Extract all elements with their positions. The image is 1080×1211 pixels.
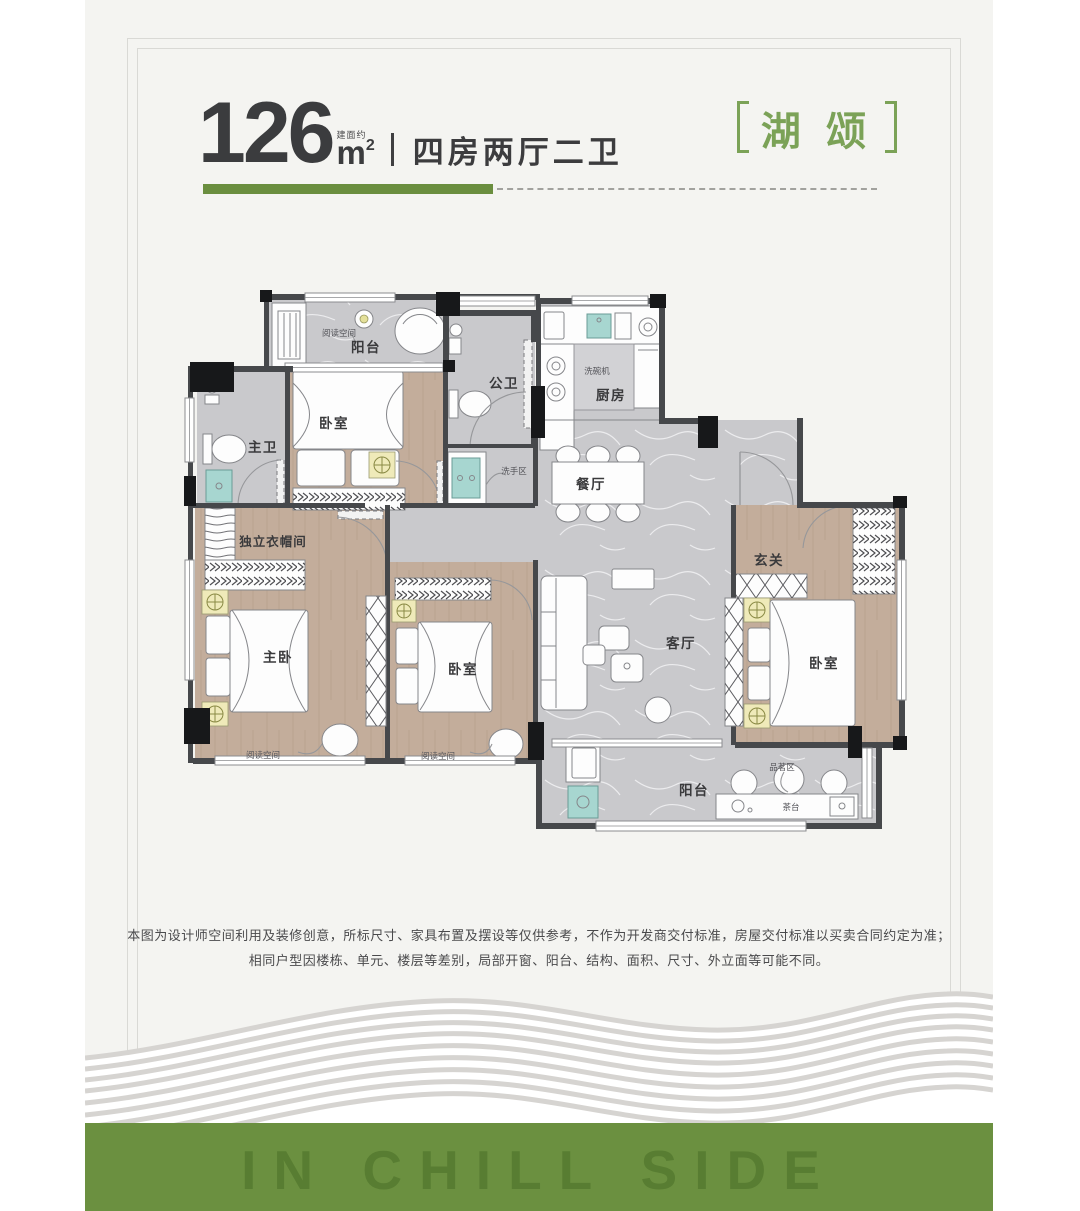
area-superscript: 2 <box>366 137 375 154</box>
label-reading-left: 阅读空间 <box>246 750 280 760</box>
wave-decoration <box>85 986 993 1123</box>
label-bedroom-right: 卧室 <box>809 655 839 671</box>
footer-slogan: IN CHILL SIDE <box>241 1132 837 1202</box>
disclaimer: 本图为设计师空间利用及装修创意，所标尺寸、家具布置及摆设等仅供参考，不作为开发商… <box>125 924 953 973</box>
disclaimer-line2: 相同户型因楼栋、单元、楼层等差别，局部开窗、阳台、结构、面积、尺寸、外立面等可能… <box>125 949 953 974</box>
label-bedroom-mid: 卧室 <box>448 661 478 677</box>
area-value: 126 <box>198 98 333 169</box>
rule-solid-bar <box>203 184 493 194</box>
footer-band: IN CHILL SIDE <box>85 1123 993 1211</box>
label-master-bath: 主卫 <box>248 439 278 455</box>
disclaimer-line1: 本图为设计师空间利用及装修创意，所标尺寸、家具布置及摆设等仅供参考，不作为开发商… <box>125 924 953 949</box>
label-wash-area: 洗手区 <box>501 466 527 476</box>
project-name: 湖 颂 <box>761 99 873 157</box>
floor-plan: 阅读空间 阳台 卧室 主卫 公卫 洗手区 洗碗机 厨房 餐厅 独立衣帽间 主卧 … <box>178 282 913 837</box>
poster-page: 126 建面约 m2 四房两厅二卫 湖 颂 <box>85 0 993 1211</box>
label-master-bedroom: 主卧 <box>263 649 293 665</box>
header-rule <box>203 184 877 194</box>
label-balcony-top: 阳台 <box>351 339 381 355</box>
label-kitchen: 厨房 <box>596 387 626 403</box>
rule-dashed-line <box>497 188 877 190</box>
label-reading-mid: 阅读空间 <box>421 751 455 761</box>
label-cloakroom: 独立衣帽间 <box>238 534 307 549</box>
label-tea-table: 茶台 <box>782 802 799 812</box>
label-foyer: 玄关 <box>754 552 784 568</box>
label-bedroom-top: 卧室 <box>319 415 349 431</box>
header-divider <box>391 133 394 166</box>
label-balcony-bottom: 阳台 <box>679 782 709 798</box>
project-badge: 湖 颂 <box>737 97 897 157</box>
layout-text: 四房两厅二卫 <box>413 138 623 167</box>
label-dining: 餐厅 <box>575 476 606 492</box>
area-unit-block: 建面约 m2 <box>337 128 375 169</box>
label-public-bath: 公卫 <box>489 376 519 391</box>
label-dishwasher: 洗碗机 <box>584 366 610 376</box>
bracket-left-icon <box>737 101 749 153</box>
label-reading-top: 阅读空间 <box>322 328 356 338</box>
label-living: 客厅 <box>665 635 696 651</box>
bracket-right-icon <box>885 101 897 153</box>
label-tea-zone: 品茗区 <box>769 762 795 772</box>
area-unit: m2 <box>337 134 375 171</box>
header: 126 建面约 m2 四房两厅二卫 湖 颂 <box>198 98 897 169</box>
